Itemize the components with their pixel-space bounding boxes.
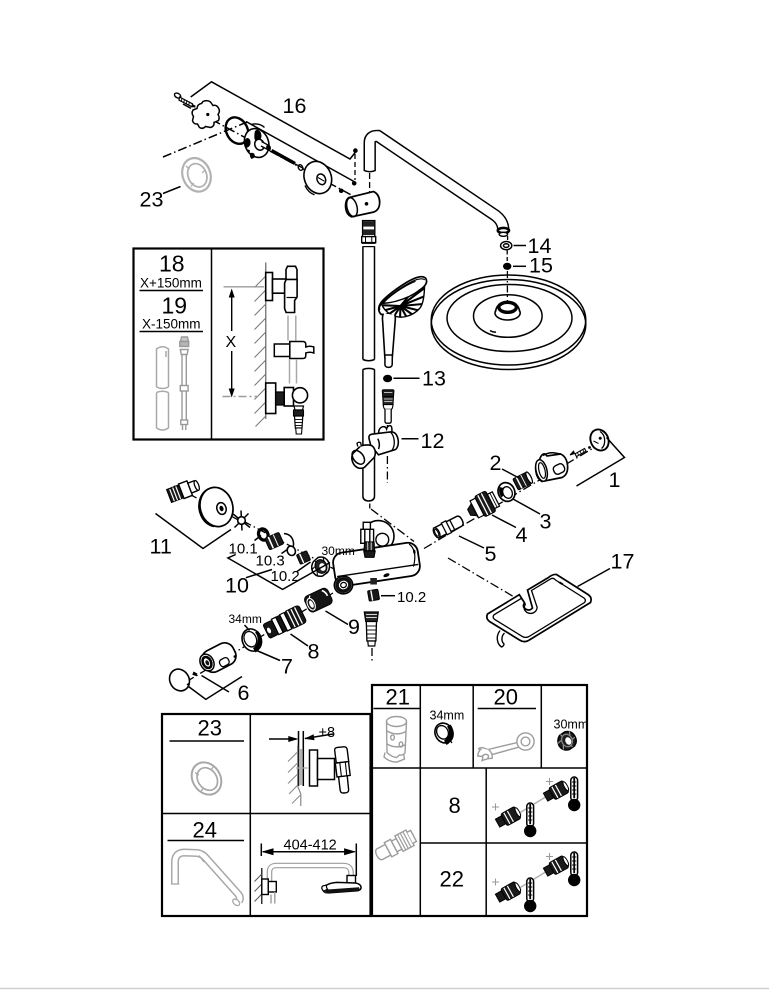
svg-text:10.3: 10.3 (256, 553, 285, 570)
svg-text:3: 3 (540, 510, 552, 534)
svg-text:2: 2 (490, 451, 502, 475)
svg-text:5: 5 (485, 542, 497, 566)
svg-text:12: 12 (421, 429, 445, 453)
svg-text:11: 11 (150, 535, 172, 559)
svg-text:16: 16 (283, 94, 307, 118)
svg-text:30mm: 30mm (554, 718, 589, 732)
svg-text:22: 22 (440, 867, 464, 892)
svg-text:1: 1 (609, 468, 621, 492)
svg-text:23: 23 (140, 188, 164, 212)
svg-text:10: 10 (225, 574, 249, 598)
svg-text:21: 21 (386, 685, 410, 710)
svg-text:4: 4 (516, 523, 528, 547)
svg-text:+8: +8 (319, 725, 336, 741)
svg-text:19: 19 (162, 293, 188, 319)
svg-text:9: 9 (348, 615, 360, 639)
svg-text:30mm: 30mm (322, 544, 355, 558)
svg-text:7: 7 (281, 655, 293, 679)
svg-text:8: 8 (449, 793, 461, 818)
svg-text:10.2: 10.2 (397, 589, 426, 606)
svg-text:20: 20 (494, 685, 518, 710)
svg-text:23: 23 (198, 716, 222, 741)
svg-text:X: X (226, 334, 237, 351)
svg-text:6: 6 (238, 681, 250, 705)
svg-text:X-150mm: X-150mm (142, 317, 201, 332)
svg-text:X+150mm: X+150mm (140, 276, 202, 291)
svg-text:15: 15 (529, 254, 553, 278)
svg-text:34mm: 34mm (430, 709, 465, 723)
svg-text:18: 18 (159, 251, 185, 277)
svg-text:24: 24 (193, 818, 217, 843)
svg-text:8: 8 (308, 640, 320, 664)
svg-text:34mm: 34mm (229, 612, 262, 626)
svg-text:13: 13 (422, 367, 446, 391)
svg-text:17: 17 (611, 550, 635, 574)
